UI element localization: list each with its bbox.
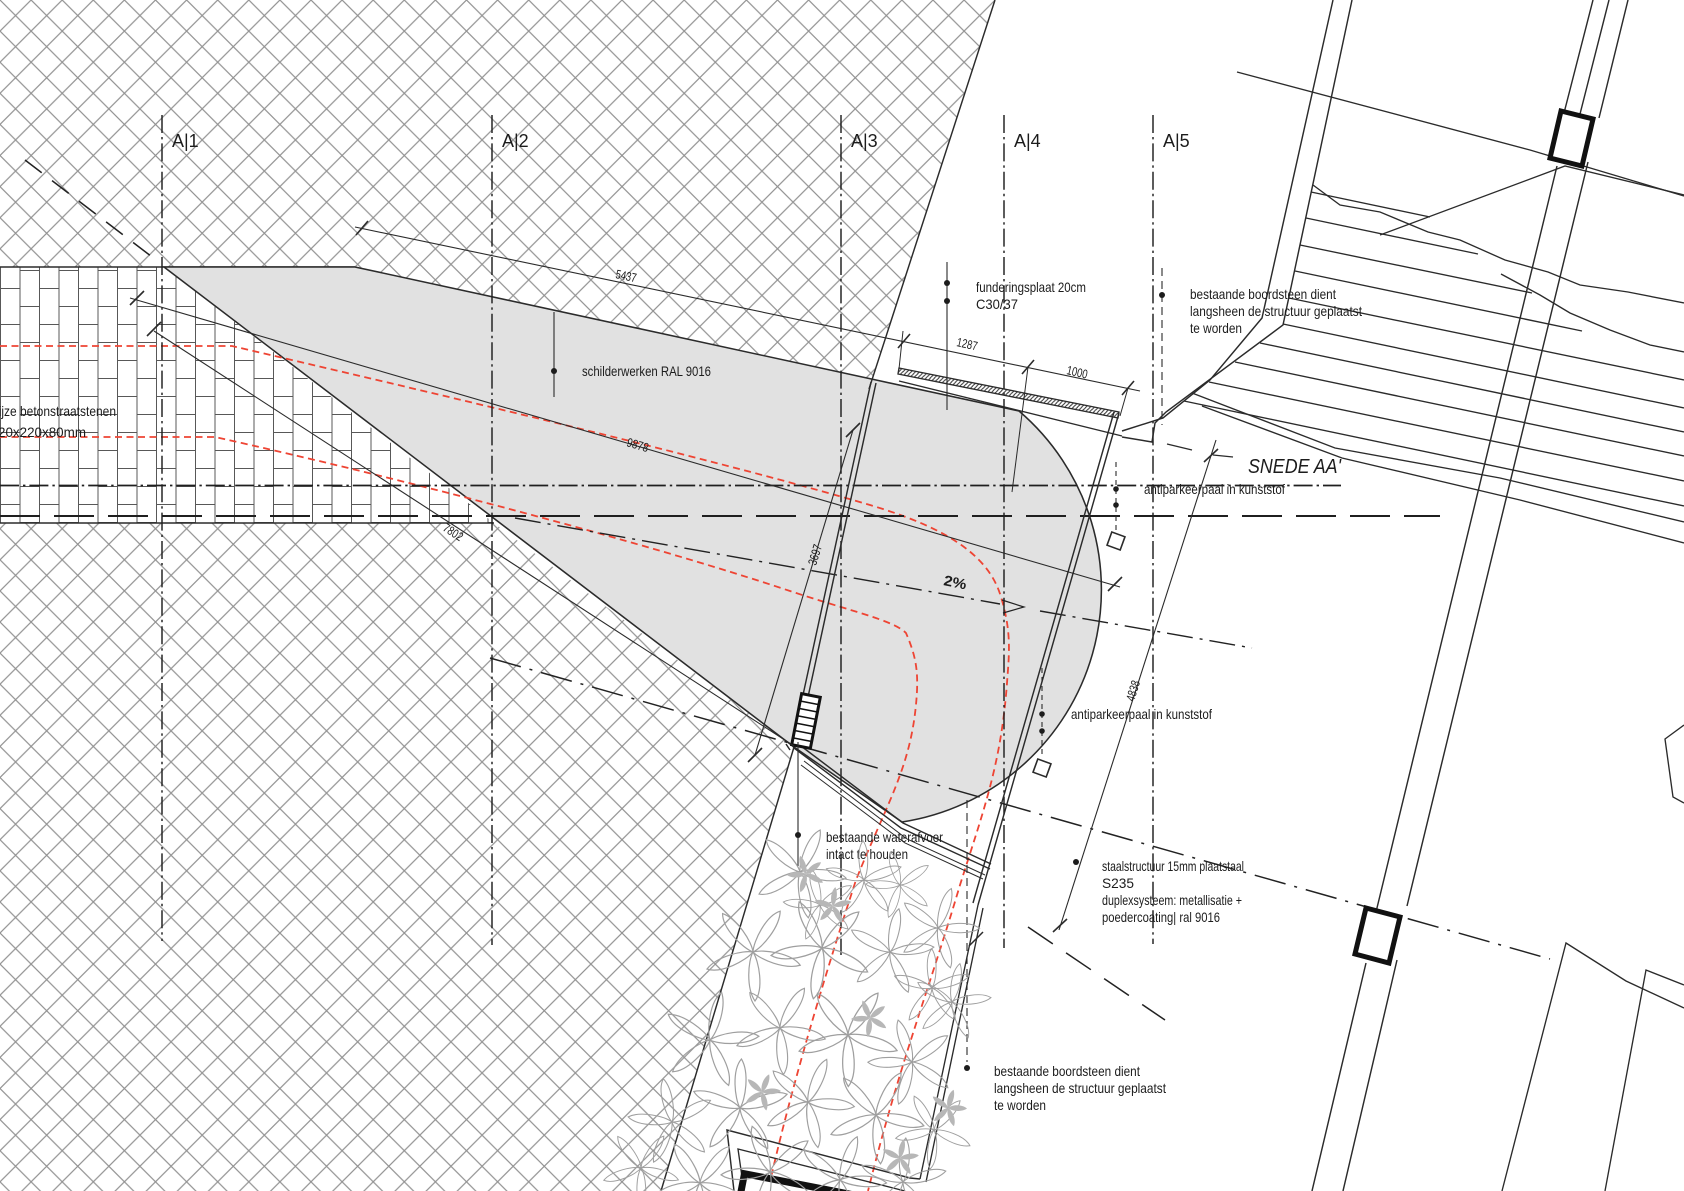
svg-text:1000: 1000 (1065, 363, 1089, 381)
svg-text:20x220x80mm: 20x220x80mm (0, 424, 86, 440)
svg-text:4838: 4838 (1123, 679, 1143, 703)
svg-text:antiparkeerpaal in kunststof: antiparkeerpaal in kunststof (1144, 481, 1285, 497)
svg-text:bestaande boordsteen dient: bestaande boordsteen dient (1190, 286, 1336, 302)
svg-text:antiparkeerpaal in kunststof: antiparkeerpaal in kunststof (1071, 706, 1212, 722)
svg-text:1287: 1287 (955, 335, 979, 353)
svg-text:funderingsplaat 20cm: funderingsplaat 20cm (976, 279, 1086, 295)
svg-text:staalstructuur 15mm plaatstaal: staalstructuur 15mm plaatstaal (1102, 858, 1244, 874)
svg-text:schilderwerken RAL 9016: schilderwerken RAL 9016 (582, 363, 711, 379)
svg-text:te worden: te worden (1190, 320, 1242, 336)
svg-text:A|3: A|3 (851, 131, 878, 151)
svg-text:A|4: A|4 (1014, 131, 1041, 151)
svg-text:langsheen de structuur geplaat: langsheen de structuur geplaatst (1190, 303, 1362, 319)
svg-text:S235: S235 (1102, 875, 1134, 891)
svg-text:bestaande waterafvoer: bestaande waterafvoer (826, 829, 943, 845)
svg-text:SNEDE AA': SNEDE AA' (1248, 455, 1342, 478)
svg-text:C30/37: C30/37 (976, 296, 1018, 312)
svg-text:A|1: A|1 (172, 131, 199, 151)
svg-text:duplexsysteem: metallisatie +: duplexsysteem: metallisatie + (1102, 892, 1242, 908)
svg-text:te worden: te worden (994, 1097, 1046, 1113)
svg-text:bestaande boordsteen dient: bestaande boordsteen dient (994, 1063, 1140, 1079)
svg-text:grijze betonstraatstenen: grijze betonstraatstenen (0, 403, 116, 419)
svg-text:A|2: A|2 (502, 131, 529, 151)
svg-text:A|5: A|5 (1163, 131, 1190, 151)
svg-text:poedercoating| ral 9016: poedercoating| ral 9016 (1102, 909, 1220, 925)
svg-text:langsheen de structuur geplaat: langsheen de structuur geplaatst (994, 1080, 1166, 1096)
